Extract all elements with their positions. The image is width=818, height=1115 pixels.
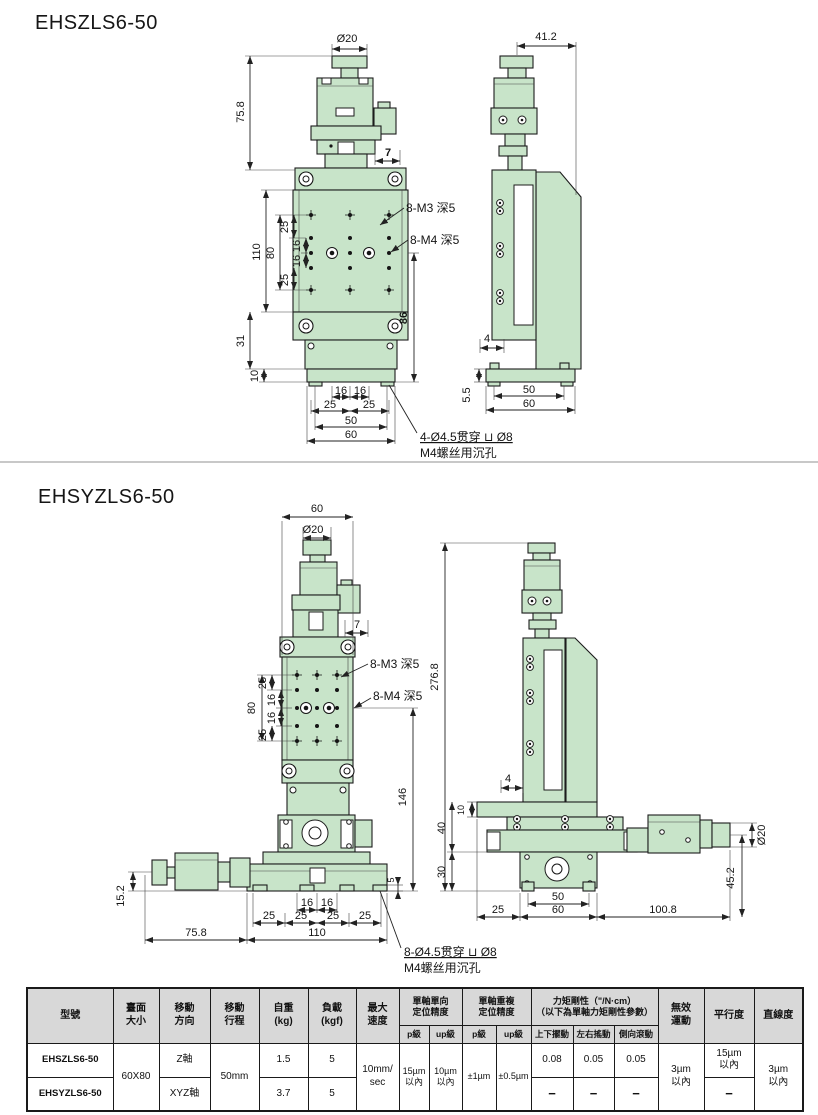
dim-25-q4: 25 bbox=[359, 910, 371, 922]
cell-lin: 3µm 以內 bbox=[754, 1043, 803, 1111]
dim-25-2b: 25 bbox=[257, 729, 269, 741]
table-row-ehszls6-50: EHSZLS6-50 60X80 Z軸 50mm 1.5 5 10mm/ sec… bbox=[27, 1043, 803, 1077]
note-counterbore-1b: M4螺丝用沉孔 bbox=[420, 446, 497, 460]
dim-16-2bl: 16 bbox=[301, 897, 313, 909]
dim-16-upper: 16 bbox=[291, 240, 303, 252]
cell-par-1: 15µm 以內 bbox=[704, 1043, 754, 1077]
cell-rep-p: ±1µm bbox=[462, 1043, 496, 1111]
dim-16-lower: 16 bbox=[291, 255, 303, 267]
note-counterbore-2b: M4螺丝用沉孔 bbox=[404, 961, 481, 975]
dim-146: 146 bbox=[397, 788, 409, 806]
dim-75-8: 75.8 bbox=[235, 101, 247, 122]
col-straightness: 直線度 bbox=[754, 988, 803, 1043]
note-8m4-2: 8-M4 深5 bbox=[373, 689, 423, 703]
cell-weight-2: 3.7 bbox=[259, 1077, 308, 1111]
dim-4-side1: 4 bbox=[484, 333, 490, 345]
dim-25-bl: 25 bbox=[324, 399, 336, 411]
dim-30: 30 bbox=[436, 866, 448, 878]
dim-75-8-2: 75.8 bbox=[185, 927, 206, 939]
dim-25-br: 25 bbox=[363, 399, 375, 411]
dim-100-8: 100.8 bbox=[649, 904, 677, 916]
dim-16-2a: 16 bbox=[266, 694, 278, 706]
cell-load-1: 5 bbox=[308, 1043, 356, 1077]
cell-model-1: EHSZLS6-50 bbox=[27, 1043, 113, 1077]
dim-40: 40 bbox=[436, 822, 448, 834]
dim-16-br: 16 bbox=[354, 385, 366, 397]
cell-model-2: EHSYZLS6-50 bbox=[27, 1077, 113, 1111]
dim-25-side2: 25 bbox=[492, 904, 504, 916]
dim-60-bottom: 60 bbox=[345, 429, 357, 441]
cell-weight-1: 1.5 bbox=[259, 1043, 308, 1077]
dim-45-2: 45.2 bbox=[725, 867, 737, 888]
dim-dia20-2: Ø20 bbox=[303, 524, 324, 536]
col-uni-up: up級 bbox=[429, 1025, 462, 1043]
col-yaw: 左右搖動 bbox=[573, 1025, 614, 1043]
dim-50-bottom: 50 bbox=[345, 415, 357, 427]
dim-15-2: 15.2 bbox=[115, 885, 127, 906]
note-counterbore-2: 8-Ø4.5贯穿 ⊔ Ø8 bbox=[404, 944, 497, 959]
dim-4-side2: 4 bbox=[505, 773, 511, 785]
dim-16-bl: 16 bbox=[335, 385, 347, 397]
drawing1-side-view: 41.2 4 5.5 50 60 bbox=[461, 31, 581, 414]
col-parallelism: 平行度 bbox=[704, 988, 754, 1043]
dim-50-side1: 50 bbox=[523, 384, 535, 396]
dim-25-q2: 25 bbox=[295, 910, 307, 922]
dim-7: 7 bbox=[385, 147, 391, 159]
cell-roll-1: 0.05 bbox=[614, 1043, 658, 1077]
col-size: 臺面 大小 bbox=[113, 988, 159, 1043]
col-rep-p: p級 bbox=[462, 1025, 496, 1043]
dim-5-5: 5.5 bbox=[461, 387, 473, 402]
dim-10: 10 bbox=[249, 370, 261, 382]
cell-travel: 50mm bbox=[210, 1043, 259, 1111]
col-rep-up: up級 bbox=[496, 1025, 531, 1043]
dim-60-side1: 60 bbox=[523, 398, 535, 410]
cell-load-2: 5 bbox=[308, 1077, 356, 1111]
cell-uni-p: 15µm 以內 bbox=[399, 1043, 429, 1111]
note-8m3-2: 8-M3 深5 bbox=[370, 657, 420, 671]
col-rep-accuracy: 單軸重複 定位精度 bbox=[462, 988, 531, 1025]
dim-50-side2: 50 bbox=[552, 891, 564, 903]
col-uni-accuracy: 單軸單向 定位精度 bbox=[399, 988, 462, 1025]
dim-110: 110 bbox=[251, 243, 263, 261]
col-roll: 側向滾動 bbox=[614, 1025, 658, 1043]
dim-25-2a: 25 bbox=[257, 677, 269, 689]
dim-10-side2: 10 bbox=[456, 805, 466, 815]
cell-yaw-2: − bbox=[573, 1077, 614, 1111]
cell-dir-1: Z軸 bbox=[159, 1043, 210, 1077]
cell-pitch-1: 0.08 bbox=[531, 1043, 573, 1077]
col-lost-motion: 無效 運動 bbox=[658, 988, 704, 1043]
col-travel: 移動 行程 bbox=[210, 988, 259, 1043]
note-counterbore-1: 4-Ø4.5贯穿 ⊔ Ø8 bbox=[420, 429, 513, 444]
cell-pitch-2: − bbox=[531, 1077, 573, 1111]
dim-7-2: 7 bbox=[354, 619, 360, 631]
dim-5: 5 bbox=[386, 877, 396, 882]
dim-16-2b: 16 bbox=[266, 712, 278, 724]
col-direction: 移動 方向 bbox=[159, 988, 210, 1043]
cell-speed: 10mm/ sec bbox=[356, 1043, 399, 1111]
dim-41-2: 41.2 bbox=[535, 31, 556, 43]
col-speed: 最大 速度 bbox=[356, 988, 399, 1043]
dim-16-2br: 16 bbox=[321, 897, 333, 909]
cell-roll-2: − bbox=[614, 1077, 658, 1111]
col-weight: 自重 (kg) bbox=[259, 988, 308, 1043]
note-8m3: 8-M3 深5 bbox=[406, 201, 456, 215]
cell-par-2: − bbox=[704, 1077, 754, 1111]
dim-60-side2: 60 bbox=[552, 904, 564, 916]
col-pitch: 上下擺動 bbox=[531, 1025, 573, 1043]
spec-table: 型號 臺面 大小 移動 方向 移動 行程 自重 (kg) 負載 (kgf) 最大… bbox=[26, 987, 804, 1112]
col-model: 型號 bbox=[27, 988, 113, 1043]
note-8m4: 8-M4 深5 bbox=[410, 233, 460, 247]
cell-dir-2: XYZ軸 bbox=[159, 1077, 210, 1111]
drawing2-front-view: 60 Ø20 7 80 25 16 16 25 8- bbox=[115, 503, 497, 975]
dim-276-8: 276.8 bbox=[429, 663, 441, 691]
dim-dia20-side2: Ø20 bbox=[756, 825, 768, 846]
cell-lost: 3µm 以內 bbox=[658, 1043, 704, 1111]
cell-uni-up: 10µm 以內 bbox=[429, 1043, 462, 1111]
technical-drawings: Ø20 75.8 7 110 80 25 16 16 25 bbox=[0, 0, 818, 985]
col-load: 負載 (kgf) bbox=[308, 988, 356, 1043]
cell-rep-up: ±0.5µm bbox=[496, 1043, 531, 1111]
dim-25-q1: 25 bbox=[263, 910, 275, 922]
datasheet-page: EHSZLS6-50 EHSYZLS6-50 bbox=[0, 0, 818, 1115]
cell-size: 60X80 bbox=[113, 1043, 159, 1111]
drawing2-side-view: 276.8 4 10 40 30 Ø20 45.2 bbox=[429, 543, 768, 921]
dim-80-2: 80 bbox=[246, 702, 258, 714]
dim-25-q3: 25 bbox=[327, 910, 339, 922]
dim-86: 86 bbox=[398, 312, 410, 324]
dim-80: 80 bbox=[265, 247, 277, 259]
dim-110-2: 110 bbox=[308, 927, 326, 939]
dim-31: 31 bbox=[235, 335, 247, 347]
dim-60-top: 60 bbox=[311, 503, 323, 515]
dim-25-upper: 25 bbox=[279, 221, 291, 233]
dim-25-lower: 25 bbox=[279, 274, 291, 286]
col-uni-p: p級 bbox=[399, 1025, 429, 1043]
dim-dia20: Ø20 bbox=[337, 33, 358, 45]
cell-yaw-1: 0.05 bbox=[573, 1043, 614, 1077]
col-torque-rigidity: 力矩剛性（"/N·cm） （以下為單軸力矩剛性參數） bbox=[531, 988, 658, 1025]
